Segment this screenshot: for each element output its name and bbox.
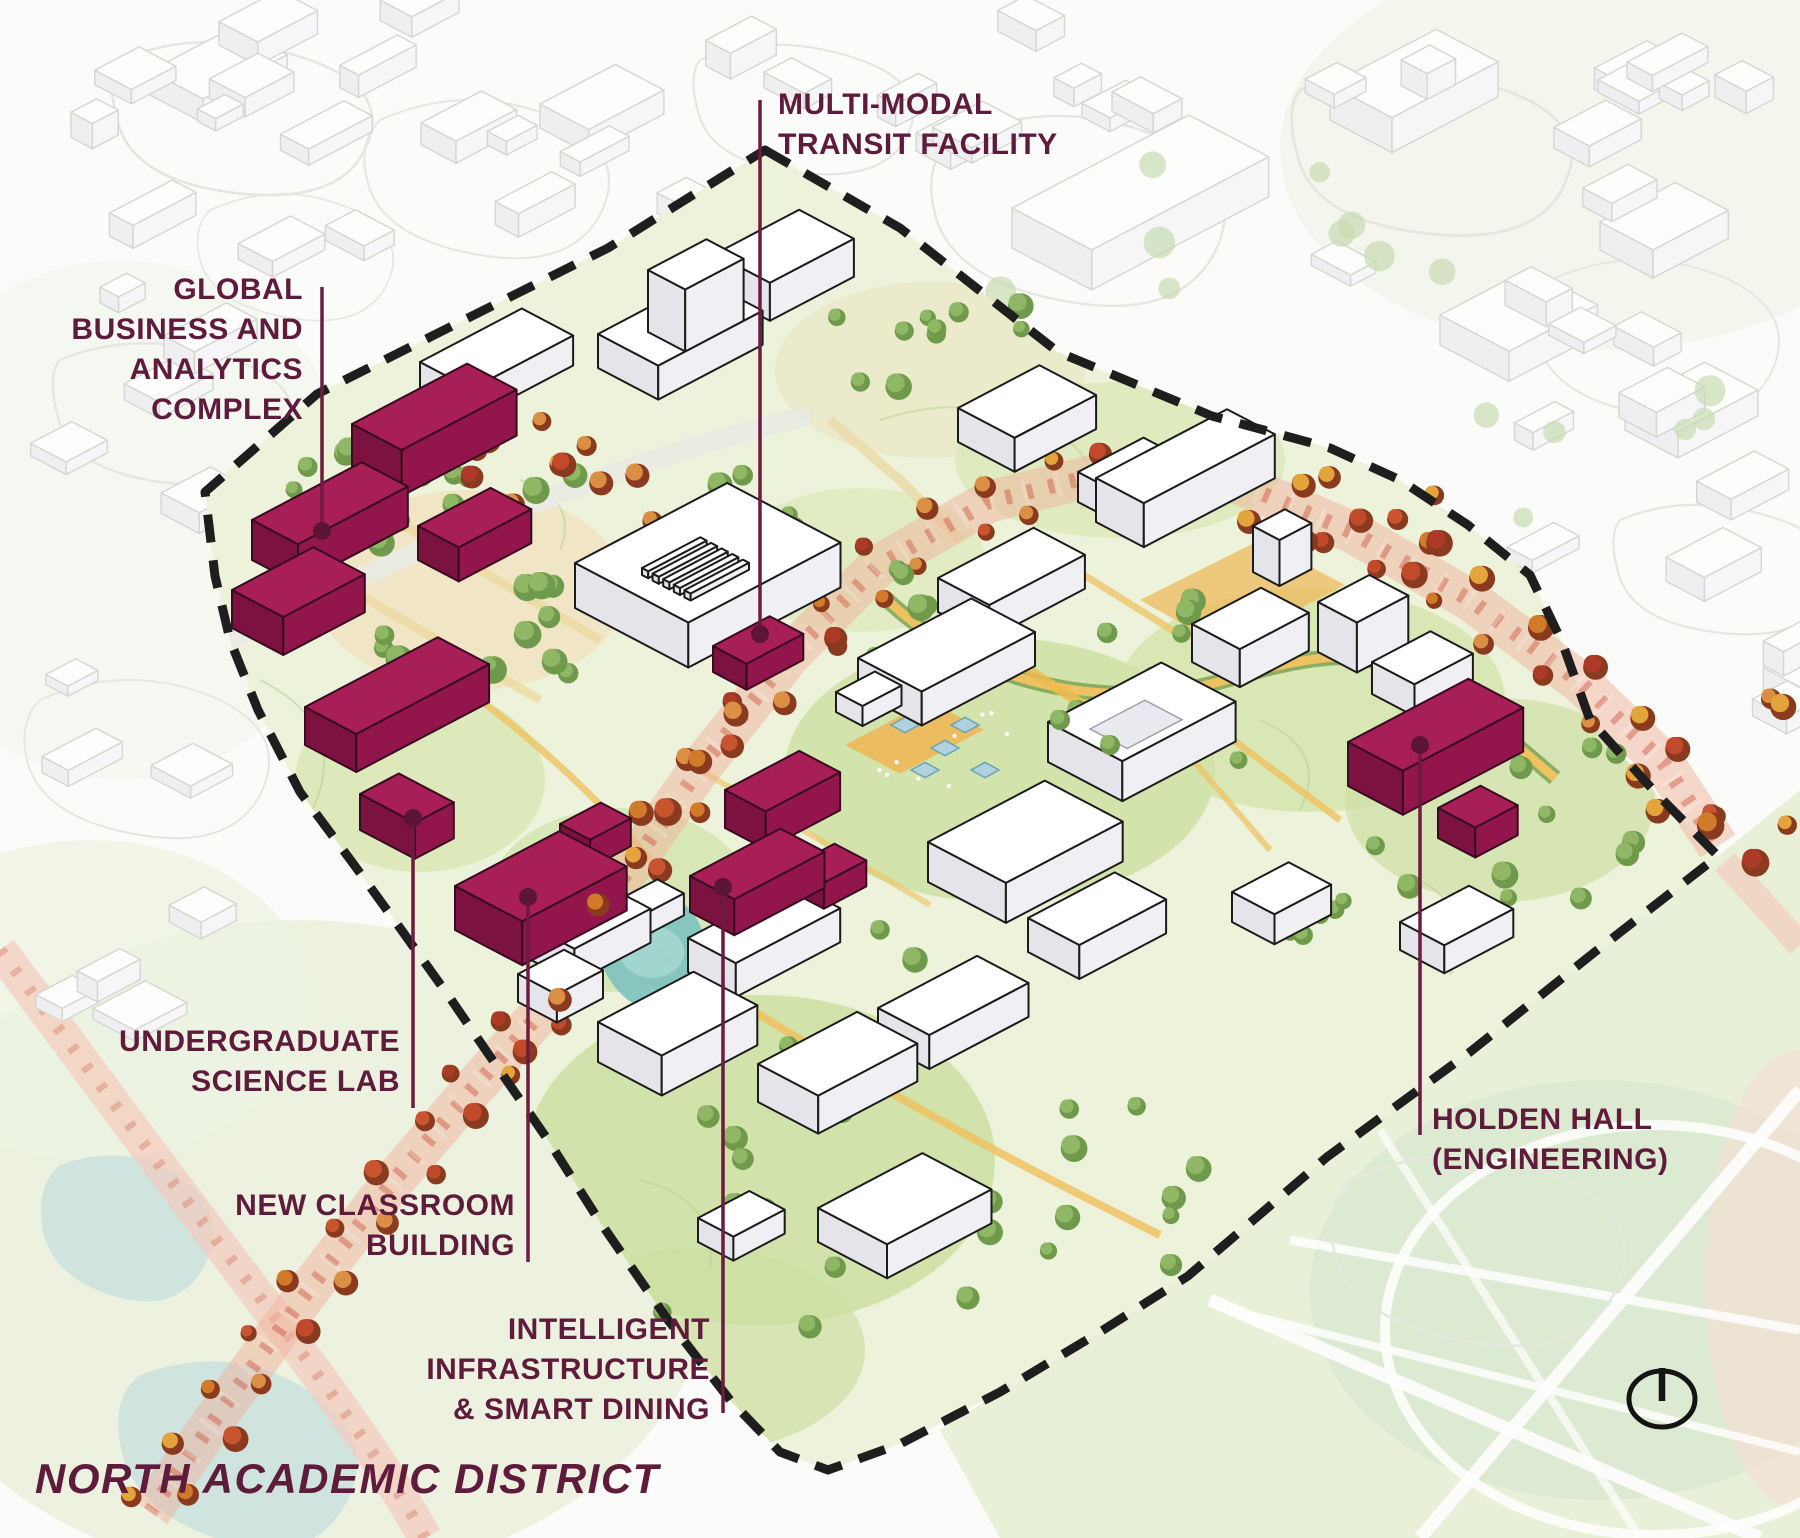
label-line: ANALYTICS — [71, 350, 303, 390]
label-new-classroom-building: NEW CLASSROOM BUILDING — [235, 1186, 515, 1266]
label-global-business-analytics-complex: GLOBAL BUSINESS AND ANALYTICS COMPLEX — [71, 270, 303, 430]
label-line: MULTI-MODAL — [778, 85, 1058, 125]
label-line: HOLDEN HALL — [1432, 1100, 1669, 1140]
campus-map-illustration — [0, 0, 1800, 1538]
label-line: (ENGINEERING) — [1432, 1140, 1669, 1180]
label-line: COMPLEX — [71, 390, 303, 430]
campus-master-plan: MULTI-MODAL TRANSIT FACILITY GLOBAL BUSI… — [0, 0, 1800, 1538]
label-line: TRANSIT FACILITY — [778, 125, 1058, 165]
label-undergraduate-science-lab: UNDERGRADUATE SCIENCE LAB — [119, 1022, 400, 1102]
district-title: NORTH ACADEMIC DISTRICT — [35, 1454, 660, 1504]
label-line: BUILDING — [235, 1226, 515, 1266]
label-holden-hall-engineering: HOLDEN HALL (ENGINEERING) — [1432, 1100, 1669, 1180]
label-line: GLOBAL — [71, 270, 303, 310]
label-line: SCIENCE LAB — [119, 1062, 400, 1102]
label-multi-modal-transit-facility: MULTI-MODAL TRANSIT FACILITY — [778, 85, 1058, 165]
label-line: UNDERGRADUATE — [119, 1022, 400, 1062]
label-line: BUSINESS AND — [71, 310, 303, 350]
label-line: INFRASTRUCTURE — [426, 1350, 710, 1390]
label-line: NEW CLASSROOM — [235, 1186, 515, 1226]
label-intelligent-infrastructure-smart-dining: INTELLIGENT INFRASTRUCTURE & SMART DININ… — [426, 1310, 710, 1430]
label-line: INTELLIGENT — [426, 1310, 710, 1350]
label-line: & SMART DINING — [426, 1390, 710, 1430]
